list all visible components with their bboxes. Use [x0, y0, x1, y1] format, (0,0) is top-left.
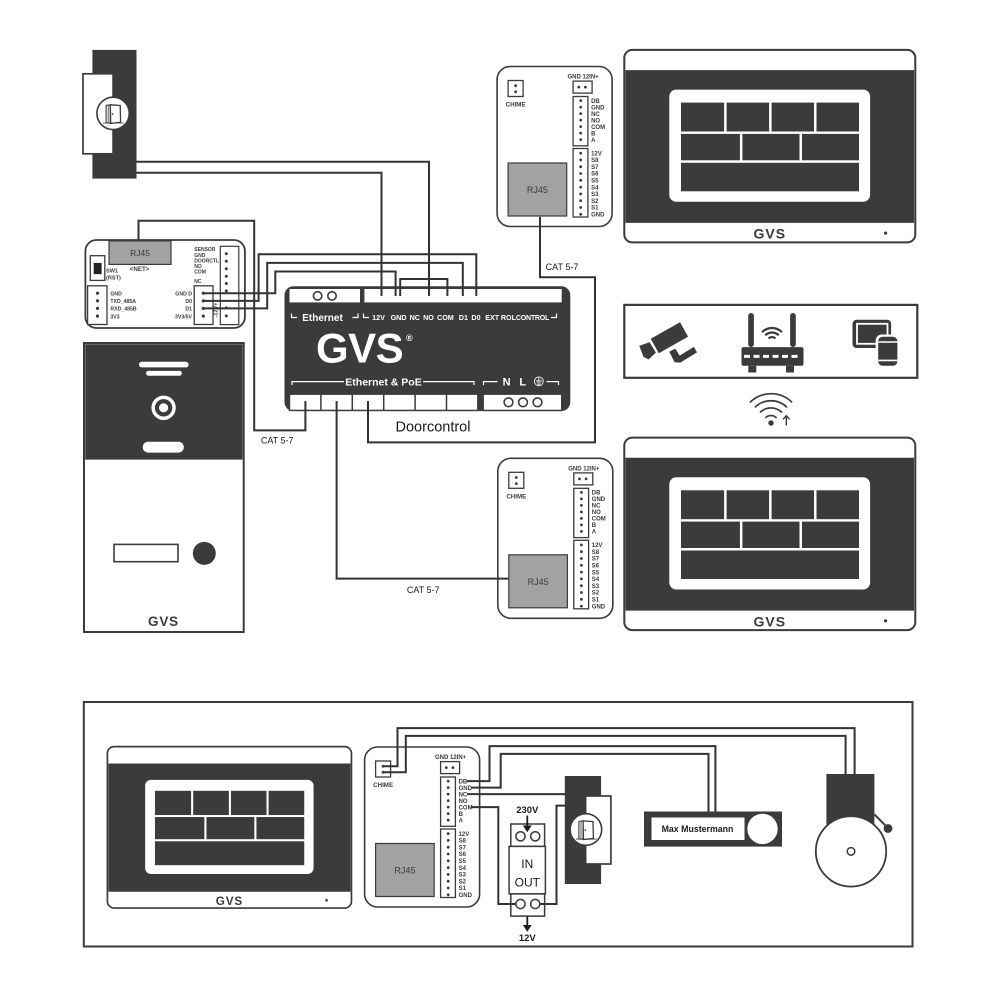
svg-text:IN: IN [521, 857, 533, 871]
svg-text:NO: NO [423, 313, 434, 322]
svg-text:D1: D1 [185, 307, 192, 313]
svg-text:230V: 230V [516, 805, 539, 816]
svg-text:OUT: OUT [515, 876, 541, 890]
svg-text:-12V+: -12V+ [214, 303, 220, 318]
svg-text:GND: GND [110, 291, 122, 297]
svg-text:12V: 12V [372, 313, 385, 322]
svg-text:NC: NC [194, 279, 202, 285]
svg-text:TXD_485A: TXD_485A [110, 299, 136, 305]
svg-text:CONTROL: CONTROL [516, 315, 550, 322]
svg-text:3V3/5V: 3V3/5V [175, 314, 193, 320]
svg-text:RXD_485B: RXD_485B [110, 307, 136, 313]
svg-text:Ethernet & PoE: Ethernet & PoE [345, 377, 421, 389]
svg-text:COM: COM [437, 313, 454, 322]
svg-text:GVS: GVS [148, 614, 179, 629]
svg-text:RJ45: RJ45 [130, 248, 150, 258]
svg-text:GND D: GND D [175, 291, 192, 297]
svg-text:CAT 5-7: CAT 5-7 [546, 262, 579, 272]
svg-text:COM: COM [194, 269, 206, 275]
svg-text:D1: D1 [459, 313, 468, 322]
svg-text:Ethernet: Ethernet [302, 313, 343, 324]
svg-text:(RST): (RST) [106, 276, 121, 282]
svg-text:CAT 5-7: CAT 5-7 [407, 585, 440, 595]
svg-text:EXT: EXT [485, 313, 500, 322]
svg-text:CAT 5-7: CAT 5-7 [261, 436, 294, 446]
svg-text:GND: GND [391, 313, 407, 322]
svg-text:D0: D0 [185, 299, 192, 305]
svg-text:SW1: SW1 [106, 269, 118, 275]
svg-text:Doorcontrol: Doorcontrol [396, 420, 471, 436]
svg-text:3V3: 3V3 [110, 314, 119, 320]
svg-text:®: ® [406, 333, 413, 343]
svg-text:ROL: ROL [501, 313, 517, 322]
svg-text:D0: D0 [471, 313, 480, 322]
svg-text:NC: NC [410, 313, 420, 322]
svg-text:Max Mustermann: Max Mustermann [662, 824, 734, 834]
svg-text:<NET>: <NET> [130, 266, 150, 273]
svg-text:12V: 12V [519, 933, 537, 944]
svg-text:N: N [503, 377, 511, 389]
svg-text:L: L [519, 377, 526, 389]
svg-text:GVS: GVS [316, 325, 403, 372]
